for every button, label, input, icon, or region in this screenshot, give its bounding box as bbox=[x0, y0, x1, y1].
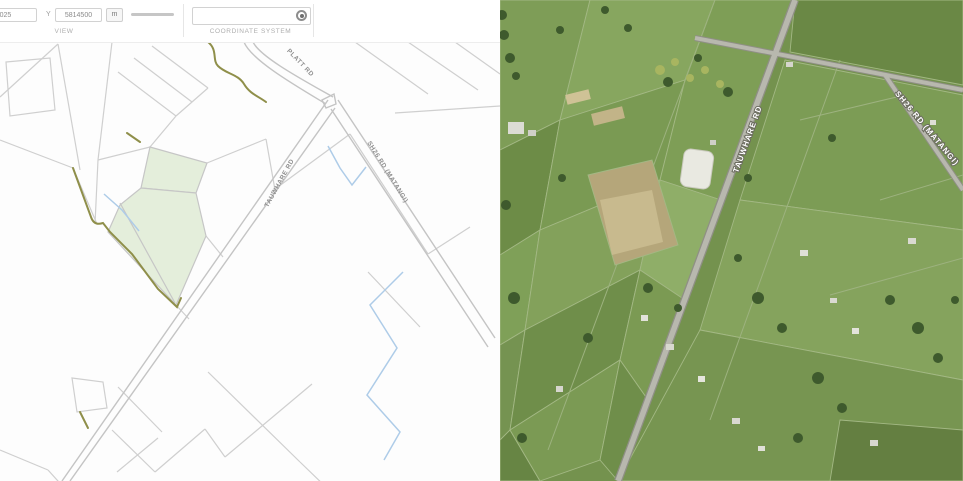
coordinate-system-caption: COORDINATE SYSTEM bbox=[192, 28, 309, 35]
cadastral-road-labels: PLATT RD TAUWHARE RD SH26 RD (MATANGI) bbox=[264, 48, 410, 209]
road-casings bbox=[62, 42, 495, 481]
cadastral-map-canvas[interactable]: PLATT RD TAUWHARE RD SH26 RD (MATANGI) bbox=[0, 42, 500, 481]
view-section-caption: VIEW bbox=[18, 28, 110, 35]
selected-parcels[interactable] bbox=[108, 147, 207, 305]
toolbar-divider bbox=[313, 4, 314, 37]
cadastral-panel[interactable]: Y m VIEW COORDINATE SYSTEM bbox=[0, 0, 500, 481]
riding-arena bbox=[680, 148, 715, 190]
road-label-platt-rd: PLATT RD bbox=[285, 48, 315, 79]
split-map-view: Y m VIEW COORDINATE SYSTEM bbox=[0, 0, 963, 481]
road-label-tauwhare-rd: TAUWHARE RD bbox=[264, 158, 296, 209]
toolbar-divider bbox=[183, 4, 184, 37]
aerial-fields bbox=[500, 0, 963, 481]
zoom-slider[interactable] bbox=[131, 13, 174, 16]
y-coordinate-input[interactable] bbox=[55, 8, 102, 22]
unit-meters-button[interactable]: m bbox=[106, 8, 123, 22]
y-coordinate-label: Y bbox=[46, 11, 51, 18]
coordinate-system-picker-icon[interactable] bbox=[296, 10, 307, 21]
map-toolbar: Y m VIEW COORDINATE SYSTEM bbox=[0, 0, 500, 43]
aerial-panel[interactable]: TAUWHARE RD SH26 RD (MATANGI) bbox=[500, 0, 963, 481]
x-coordinate-input[interactable] bbox=[0, 8, 37, 22]
parcel-boundaries bbox=[0, 42, 500, 481]
aerial-map-canvas[interactable]: TAUWHARE RD SH26 RD (MATANGI) bbox=[500, 0, 963, 481]
coordinate-system-select[interactable] bbox=[192, 7, 311, 25]
